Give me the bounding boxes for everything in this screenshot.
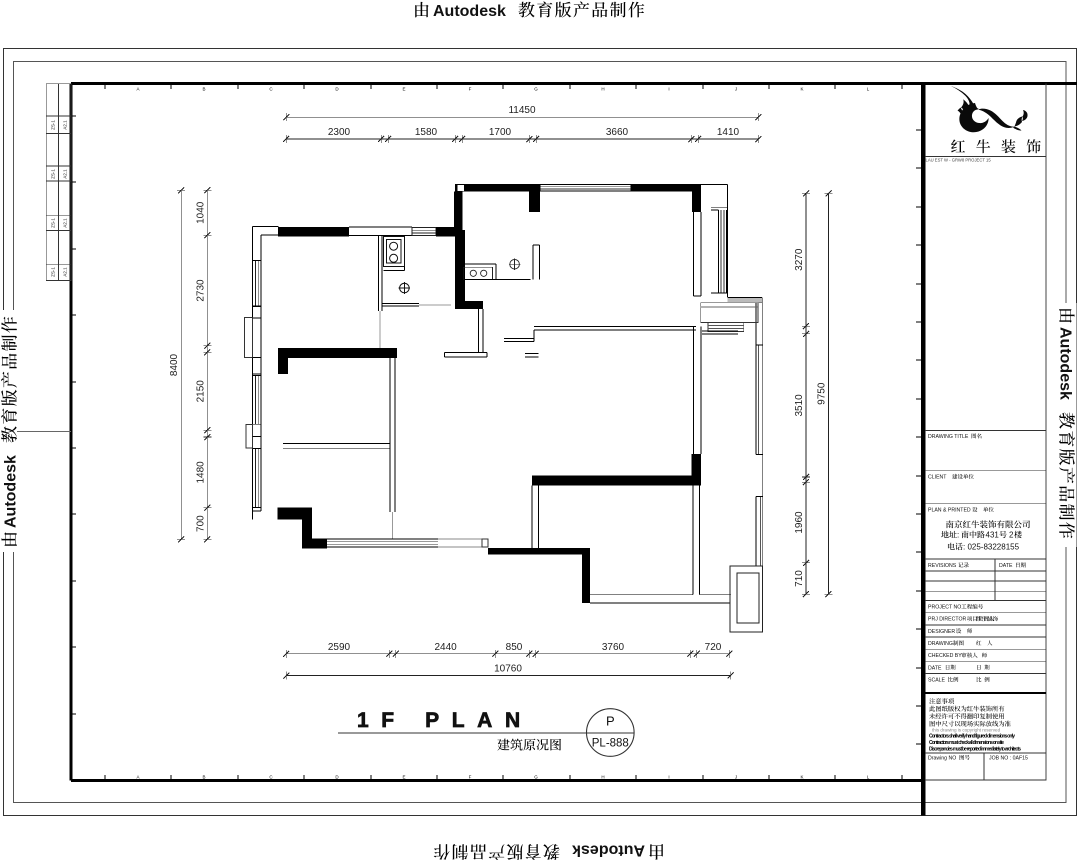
svg-text:1480: 1480 xyxy=(196,461,207,484)
svg-text:850: 850 xyxy=(506,642,523,653)
svg-text:Contractors must check all dim: Contractors must check all dimensions on… xyxy=(929,740,1004,746)
svg-text:11450: 11450 xyxy=(508,105,536,116)
svg-text:1F PLAN: 1F PLAN xyxy=(357,709,533,732)
svg-text:8400: 8400 xyxy=(169,353,180,376)
svg-text:JOB NO : 0AF15: JOB NO : 0AF15 xyxy=(989,756,1028,762)
svg-text:431: 431 xyxy=(986,531,1000,540)
svg-text:A2.1: A2.1 xyxy=(63,120,68,130)
svg-text:REVISIONS: REVISIONS xyxy=(928,563,957,569)
svg-text:710: 710 xyxy=(794,570,805,587)
svg-text:D: D xyxy=(335,87,339,92)
svg-text:PLAN & PRINTED: PLAN & PRINTED xyxy=(928,508,971,514)
svg-text:F: F xyxy=(469,87,472,92)
svg-text:A2.1: A2.1 xyxy=(63,267,68,277)
svg-text:DESIGNER: DESIGNER xyxy=(928,629,955,635)
svg-text:A: A xyxy=(136,87,139,92)
svg-text:1040: 1040 xyxy=(196,201,207,224)
svg-text:E: E xyxy=(402,775,405,780)
svg-text:3510: 3510 xyxy=(794,394,805,417)
svg-text:D: D xyxy=(335,775,339,780)
svg-text:C: C xyxy=(269,87,273,92)
svg-text:1700: 1700 xyxy=(489,127,512,138)
svg-text:A: A xyxy=(136,775,139,780)
svg-text:I: I xyxy=(668,775,669,780)
svg-text:this drawing is copyright rese: this drawing is copyright reserved xyxy=(932,728,1001,733)
svg-text:G: G xyxy=(534,87,538,92)
svg-text:: 025-83228155: : 025-83228155 xyxy=(963,543,1020,552)
svg-text:2440: 2440 xyxy=(434,642,457,653)
svg-text:ZS-1: ZS-1 xyxy=(51,218,56,228)
svg-text:Contractors shall verify hand: Contractors shall verify hand figured di… xyxy=(929,734,1015,740)
svg-text:G: G xyxy=(534,775,538,780)
svg-text:H: H xyxy=(601,775,604,780)
svg-text:P: P xyxy=(606,714,615,729)
svg-text:CLIENT: CLIENT xyxy=(928,475,947,481)
svg-text:J: J xyxy=(735,87,737,92)
svg-text:K: K xyxy=(800,87,803,92)
svg-text:K: K xyxy=(800,775,803,780)
svg-text:ZS-1: ZS-1 xyxy=(51,120,56,130)
svg-text:H: H xyxy=(601,87,604,92)
svg-text:J: J xyxy=(735,775,737,780)
svg-text:B: B xyxy=(202,775,205,780)
svg-text:Drawing NO: Drawing NO xyxy=(928,756,956,762)
svg-text:CHECKED BY: CHECKED BY xyxy=(928,653,962,659)
svg-text:DATE: DATE xyxy=(999,563,1013,569)
svg-text:3660: 3660 xyxy=(606,127,629,138)
svg-text:2730: 2730 xyxy=(196,279,207,302)
svg-text:C: C xyxy=(269,775,273,780)
svg-text:720: 720 xyxy=(705,642,722,653)
svg-text:PRJ DIRECTOR: PRJ DIRECTOR xyxy=(928,617,966,623)
svg-text:2590: 2590 xyxy=(328,642,351,653)
svg-text:B: B xyxy=(202,87,205,92)
svg-text:2150: 2150 xyxy=(196,380,207,403)
svg-text:DRAWING TITLE: DRAWING TITLE xyxy=(928,434,969,440)
svg-text:L: L xyxy=(867,87,870,92)
svg-text:A2.1: A2.1 xyxy=(63,169,68,179)
svg-text::: : xyxy=(957,531,959,540)
svg-text:PROJECT NO: PROJECT NO xyxy=(928,605,961,611)
svg-text:2: 2 xyxy=(1009,531,1014,540)
svg-text:DATE: DATE xyxy=(928,665,942,671)
svg-text:9750: 9750 xyxy=(817,382,828,405)
svg-text:PL-888: PL-888 xyxy=(592,738,629,750)
svg-text:ZS-1: ZS-1 xyxy=(51,169,56,179)
svg-text:3760: 3760 xyxy=(602,642,625,653)
svg-text:L: L xyxy=(867,775,870,780)
svg-text:2300: 2300 xyxy=(328,127,351,138)
svg-text:DRAWING: DRAWING xyxy=(928,641,953,647)
svg-text:10760: 10760 xyxy=(494,664,522,675)
svg-text:700: 700 xyxy=(196,515,207,532)
svg-text:E: E xyxy=(402,87,405,92)
svg-text:SCALE: SCALE xyxy=(928,678,946,684)
svg-text:LAU EST W - GRW8 PROJECT 15: LAU EST W - GRW8 PROJECT 15 xyxy=(926,158,992,163)
svg-text:3270: 3270 xyxy=(794,248,805,271)
svg-text:A2.1: A2.1 xyxy=(63,218,68,228)
svg-text:ZS-1: ZS-1 xyxy=(51,267,56,277)
svg-text:I: I xyxy=(668,87,669,92)
svg-text:Discrepancies must be reported: Discrepancies must be reported immediate… xyxy=(929,747,1021,753)
svg-text:F: F xyxy=(469,775,472,780)
svg-text:1960: 1960 xyxy=(794,511,805,534)
svg-text:1580: 1580 xyxy=(415,127,438,138)
svg-text:1410: 1410 xyxy=(717,127,740,138)
